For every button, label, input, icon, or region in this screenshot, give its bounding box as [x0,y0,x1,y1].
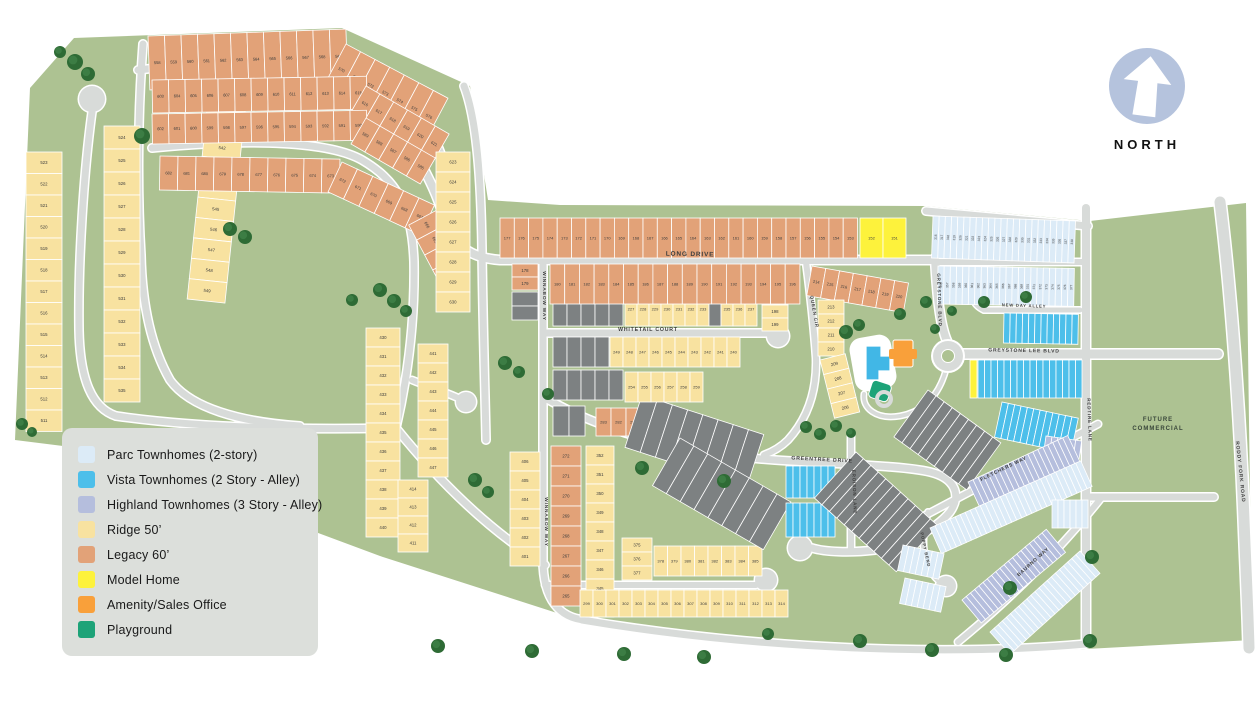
lot-number: 314 [778,601,785,606]
lot-number: 257 [667,384,674,389]
tree-icon [1084,635,1092,643]
tree-icon [854,320,861,327]
lot [807,466,814,498]
lot-number: 628 [449,259,457,264]
lot-number: 610 [273,92,281,97]
lot-number: 158 [776,235,783,240]
lot-number: 546 [210,227,218,233]
lot-number: 181 [569,281,576,286]
roundabout-island [942,350,955,363]
lot-number: 374 [1051,284,1055,290]
lot-number: 515 [40,332,48,337]
lot-number: 613 [322,91,330,96]
lot-number: 381 [698,558,705,563]
lot-number: 299 [583,601,590,606]
lot-number: 166 [661,235,668,240]
lot-number: 605 [190,93,198,98]
tree-icon [763,629,770,636]
lot-number: 521 [40,203,48,208]
lot [1064,500,1070,528]
lot-number: 302 [622,601,629,606]
lot-number: 231 [676,306,683,311]
lot-number: 530 [118,273,126,278]
lot-number: 255 [641,384,648,389]
lot-number: 155 [818,235,825,240]
lot-number: 444 [429,408,437,413]
lot-number: 535 [118,388,126,393]
lot-number: 558 [154,60,162,65]
legend-label: Highland Townhomes (3 Story - Alley) [107,498,322,512]
lot-number: 559 [170,59,178,64]
lot-number: 513 [40,375,48,380]
lot [800,466,807,498]
legend-swatch [78,496,95,513]
lot-number: 337 [1064,239,1068,245]
lot-number: 242 [704,349,711,354]
lot-number: 519 [40,246,48,251]
lot-number: 564 [253,56,261,61]
lot-number: 542 [218,145,226,151]
tree-icon [69,56,78,65]
lot-number: 194 [760,281,767,286]
lot-number: 316 [934,234,938,240]
tree-icon [28,428,34,434]
lot-number: 185 [628,281,635,286]
lot-number: 601 [174,126,182,131]
lot [609,370,623,400]
lot-number: 213 [827,304,835,309]
culdesac [79,86,105,112]
lot-number: 154 [833,235,840,240]
lot [1034,314,1041,344]
legend-item: Legacy 60’ [78,546,302,563]
tree-icon [618,648,626,656]
lot-group [553,370,623,400]
lot-number: 240 [730,349,737,354]
legend-item: Parc Townhomes (2-story) [78,446,302,463]
legend-label: Ridge 50’ [107,523,162,537]
lot-number: 283 [600,419,607,424]
lot-number: 607 [223,92,231,97]
street-label: GREYSTONE LEE BLVD [988,347,1060,354]
lot-number: 411 [410,540,417,545]
lot-number: 180 [554,281,561,286]
lot-number: 403 [521,516,529,521]
lot-number: 376 [633,556,641,561]
lot-number: 629 [449,279,457,284]
lot-number: 332 [1033,238,1037,244]
lot-number: 282 [615,419,622,424]
lot [1041,314,1048,344]
street-label: LONG DRIVE [666,251,715,259]
street-label: WINNABOW WAY [543,497,549,546]
lot-number: 243 [691,349,698,354]
lot-number: 157 [790,235,797,240]
lot [1076,500,1082,528]
lot-group: 213212211210 [818,300,844,356]
lot-number: 682 [165,170,173,175]
lot [1053,314,1060,344]
tree-icon [831,421,838,428]
lot-number: 328 [1008,237,1012,243]
tree-icon [815,429,822,436]
lot-number: 187 [657,281,664,286]
lot-number: 401 [521,554,529,559]
lot-number: 565 [269,56,277,61]
lot-number: 175 [532,235,539,240]
lot-number: 440 [379,525,387,530]
legend-swatch [78,621,95,638]
legend-item: Vista Townhomes (2 Story - Alley) [78,471,302,488]
tree-icon [840,326,848,334]
lot-number: 609 [256,92,264,97]
lot-number: 168 [633,235,640,240]
tree-icon [931,325,937,331]
lot [814,503,821,537]
lot-number: 516 [40,311,48,316]
lot [1011,360,1018,398]
lot-number: 268 [562,533,570,538]
legend-item: Model Home [78,571,302,588]
lot-number: 549 [203,288,211,294]
north-label: NORTH [1106,137,1188,152]
lot-number: 312 [752,601,759,606]
lot-number: 545 [212,206,220,212]
lot-number: 193 [745,281,752,286]
site-map-page: 5235225215205195185175165155145135125115… [0,0,1255,705]
lot-number: 592 [322,123,330,128]
lot-number: 362 [976,283,980,289]
lot-number: 327 [1002,237,1006,243]
lot-number: 198 [771,309,779,314]
lot-number: 164 [690,235,697,240]
lot [1030,360,1037,398]
lot-number: 330 [1020,237,1024,243]
lot-number: 237 [748,306,755,311]
legend-item: Amenity/Sales Office [78,596,302,613]
tree-icon [543,389,550,396]
lot-number: 196 [789,281,796,286]
tree-icon [469,474,477,482]
tree-icon [718,475,726,483]
legend-swatch [78,546,95,563]
lot-number: 227 [628,306,635,311]
lot-number: 258 [680,384,687,389]
lot-number: 232 [688,306,695,311]
lot [793,466,800,498]
lot [595,370,609,400]
lot [1017,360,1024,398]
lot-group [978,360,1082,398]
lot-number: 369 [1020,284,1024,290]
lot-number: 336 [1057,238,1061,244]
lot-number: 380 [684,558,691,563]
lot-number: 364 [989,283,993,289]
lot-number: 673 [327,173,335,178]
lot-number: 528 [118,227,126,232]
lot-number: 677 [255,172,263,177]
lot-group: 254255256257258259 [625,372,703,402]
lot-number: 176 [518,235,525,240]
tree-icon [1086,551,1094,559]
lot-number: 322 [971,235,975,241]
lot-number: 311 [739,601,746,606]
lot-group: 430431432433434435436437438439440 [366,328,400,537]
lot [581,370,595,400]
lot-group: 682681680679678677676675674673 [159,156,340,193]
tree-icon [432,640,440,648]
lot-number: 349 [596,510,604,515]
lot-number: 675 [291,173,299,178]
lot-number: 512 [40,397,48,402]
lot-number: 511 [41,418,48,423]
lot-group: 406405404403402401 [510,452,540,566]
lot-number: 402 [521,535,529,540]
lot-number: 267 [562,553,570,558]
lot-number: 367 [1007,283,1011,289]
lot-number: 527 [118,204,126,209]
lot-number: 441 [429,351,437,356]
lot-number: 266 [562,573,570,578]
lot-number: 626 [449,219,457,224]
lot-number: 624 [449,179,457,184]
lot-number: 372 [1038,284,1042,290]
lot [1047,314,1054,344]
tree-icon [698,651,706,659]
tree-icon [1021,292,1028,299]
lot-number: 598 [223,125,231,130]
lot-number: 245 [665,349,672,354]
tree-icon [895,309,902,316]
tree-icon [82,68,90,76]
lot [807,503,814,537]
lot [1076,360,1083,398]
lot [512,306,538,320]
lot-number: 379 [671,558,678,563]
legend-item: Ridge 50’ [78,521,302,538]
lot-number: 437 [379,468,387,473]
lot-number: 445 [429,427,437,432]
lot-number: 406 [521,459,529,464]
north-arrow: NORTH [1106,46,1188,152]
legend-swatch [78,596,95,613]
lot-number: 600 [190,126,198,131]
lot-number: 348 [596,529,604,534]
lot [1063,360,1070,398]
lot-number: 186 [642,281,649,286]
legend-item: Highland Townhomes (3 Story - Alley) [78,496,302,513]
lot-number: 346 [596,567,604,572]
lot-number: 595 [273,124,281,129]
tree-icon [847,429,853,435]
lot [1059,314,1066,344]
lot-number: 244 [678,349,685,354]
lot-group [1052,500,1088,528]
lot [1058,500,1064,528]
future-commercial-label: COMMERCIAL [1132,426,1183,432]
lot-number: 170 [604,235,611,240]
legend-label: Vista Townhomes (2 Story - Alley) [107,473,300,487]
lot-number: 188 [672,281,679,286]
lot [978,360,985,398]
lot-number: 329 [1014,237,1018,243]
lot-number: 174 [547,235,554,240]
legend-panel: Parc Townhomes (2-story)Vista Townhomes … [62,428,318,656]
lot-number: 368 [1013,283,1017,289]
lot-number: 182 [583,281,590,286]
lot-group: 375376377 [622,538,652,580]
lot-number: 404 [521,497,529,502]
tree-icon [401,306,408,313]
lot-number: 568 [319,54,327,59]
lot-number: 183 [598,281,605,286]
lot-number: 366 [1001,283,1005,289]
lot [1069,360,1076,398]
legend-swatch [78,571,95,588]
lot-number: 304 [648,601,655,606]
lot-number: 566 [286,55,294,60]
lot-number: 308 [700,601,707,606]
lot [1022,313,1029,343]
lot-number: 606 [207,93,215,98]
lot-number: 163 [704,235,711,240]
lot-number: 561 [203,58,211,63]
lot-number: 358 [951,282,955,288]
lot-number: 179 [521,281,529,286]
lot-number: 301 [609,601,616,606]
lot-number: 603 [157,94,165,99]
lot [1072,314,1079,344]
lot-number: 435 [379,430,387,435]
lot-number: 212 [827,318,835,323]
lot-number: 375 [1057,284,1061,290]
lot [595,337,609,367]
lot-number: 593 [306,123,314,128]
lot-number: 318 [946,235,950,241]
lot-number: 236 [736,306,743,311]
lot-number: 524 [118,135,126,140]
legend-label: Model Home [107,573,180,587]
lot-number: 433 [379,392,387,397]
lot-group: 623624625626627628629630 [436,152,470,312]
lot [991,360,998,398]
lot [1052,500,1058,528]
lot-number: 611 [289,91,296,96]
lot-number: 313 [765,601,772,606]
lot-number: 309 [713,601,720,606]
future-commercial-label: FUTURE [1143,417,1173,423]
lot-number: 560 [187,59,195,64]
lot-number: 256 [654,384,661,389]
lot-number: 604 [174,93,182,98]
lot-number: 265 [562,593,570,598]
lot-number: 331 [1027,237,1031,243]
lot-number: 269 [562,513,570,518]
lot-number: 230 [664,306,671,311]
north-arrow-icon [1106,46,1188,128]
lot-number: 357 [945,282,949,288]
lot-number: 373 [1044,284,1048,290]
tree-icon [926,644,934,652]
lot-number: 310 [726,601,733,606]
lot-number: 596 [256,124,264,129]
lot-number: 630 [449,299,457,304]
tree-icon [388,295,396,303]
lot [998,360,1005,398]
lot-number: 350 [596,491,604,496]
legend-swatch [78,521,95,538]
lot-number: 567 [302,55,310,60]
lot [970,360,977,398]
lot-number: 352 [596,453,604,458]
lot-number: 377 [633,570,641,575]
lot [786,466,793,498]
lot-number: 363 [982,283,986,289]
lot [553,370,567,400]
legend-item: Playground [78,621,302,638]
lot-group: 2993003013023033043053063073083093103113… [580,590,788,617]
lot-number: 249 [613,349,620,354]
lot-number: 529 [118,250,126,255]
lot-number: 172 [575,235,582,240]
lot [1024,360,1031,398]
tree-icon [526,645,534,653]
lot-number: 370 [1026,284,1030,290]
lot-number: 612 [306,91,314,96]
lot-number: 361 [970,283,974,289]
lot-number: 152 [868,235,875,240]
lot-number: 434 [379,411,387,416]
lot-number: 625 [449,199,457,204]
lot-number: 360 [964,283,968,289]
lot [1082,500,1088,528]
lot-number: 178 [521,268,529,273]
lot-number: 303 [635,601,642,606]
lot-number: 338 [1070,239,1074,245]
lot-group [512,292,538,320]
tree-icon [1004,582,1012,590]
tree-icon [854,635,862,643]
lot-number: 259 [693,384,700,389]
lot-number: 305 [661,601,668,606]
tree-icon [136,130,145,139]
lot [567,370,581,400]
lot [1004,360,1011,398]
lot-number: 431 [379,354,387,359]
lot-number: 241 [717,349,724,354]
lot-number: 171 [590,235,597,240]
lot-number: 517 [40,289,48,294]
lot-number: 405 [521,478,529,483]
lot-number: 324 [983,236,987,242]
lot-number: 211 [828,332,835,337]
lot-group [970,360,977,398]
lot-number: 432 [379,373,387,378]
lot [1056,360,1063,398]
lot-number: 334 [1045,238,1049,244]
lot-number: 414 [409,486,417,491]
lot-number: 563 [236,57,244,62]
lot-group [553,337,609,367]
lot-group: 524525526527528529530531532533534535 [104,126,140,402]
lot-number: 442 [429,370,437,375]
lot-number: 162 [718,235,725,240]
lot-number: 151 [891,235,898,240]
tree-icon [921,297,928,304]
lot-number: 189 [686,281,693,286]
tree-icon [1000,649,1008,657]
lot-number: 562 [220,58,228,63]
